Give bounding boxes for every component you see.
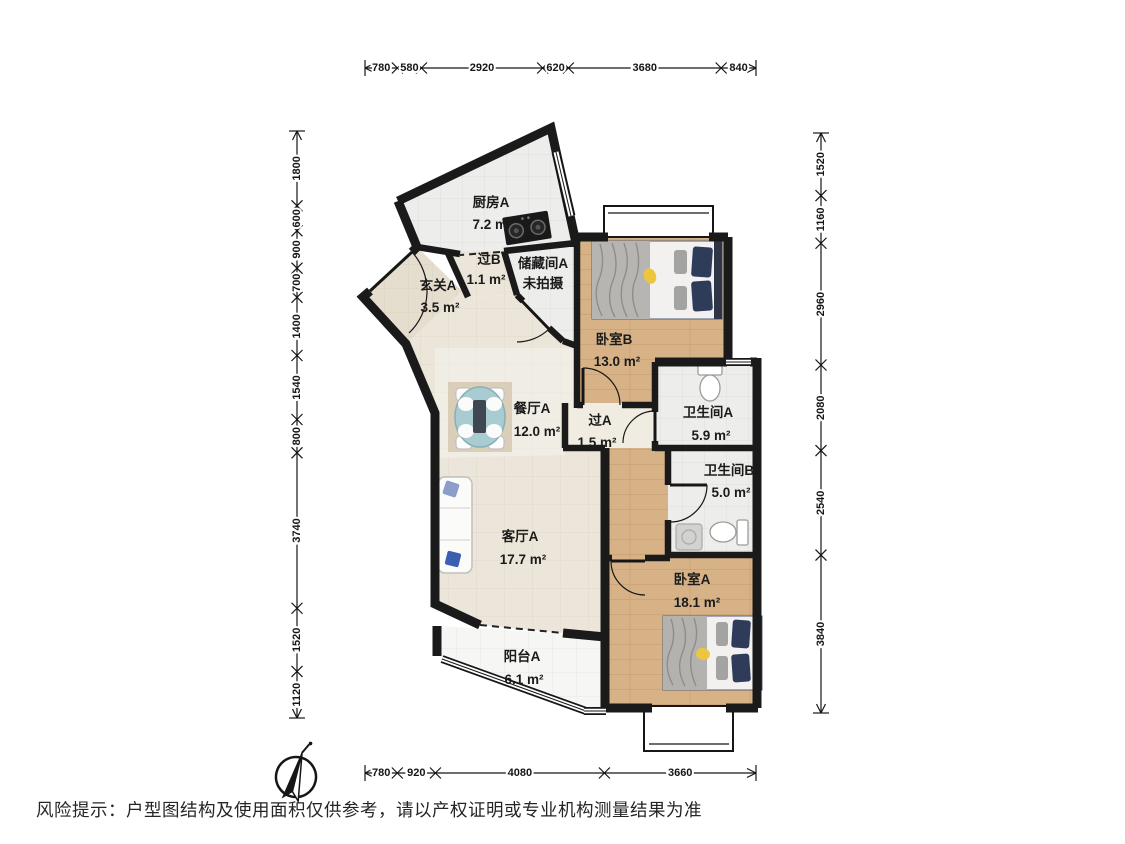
dimension-label: 1520 (815, 152, 827, 176)
svg-text:17.7 m²: 17.7 m² (500, 552, 547, 567)
dimension-label: 3740 (291, 518, 303, 542)
dimension-chain-top: 78058029206203680840 (365, 60, 756, 76)
dimension-label: 1540 (291, 375, 303, 399)
svg-text:6.1 m²: 6.1 m² (504, 672, 544, 687)
dimension-label: 1520 (291, 628, 303, 652)
dimension-label: 2960 (815, 292, 827, 316)
dimension-label: 700 (291, 274, 303, 292)
svg-text:卫生间A: 卫生间A (683, 404, 733, 420)
dimension-label: 920 (407, 767, 425, 779)
svg-text:卧室B: 卧室B (596, 331, 633, 347)
svg-text:13.0 m²: 13.0 m² (594, 354, 641, 369)
svg-text:12.0 m²: 12.0 m² (514, 424, 561, 439)
dimension-chain-bottom: 78092040803660 (365, 765, 756, 781)
dimension-label: 3680 (633, 62, 657, 74)
dimension-label: 2080 (815, 396, 827, 420)
svg-text:1.1 m²: 1.1 m² (466, 272, 506, 287)
toilet-icon-bath-a (698, 364, 722, 401)
svg-text:未拍摄: 未拍摄 (523, 275, 564, 291)
svg-text:5.0 m²: 5.0 m² (711, 485, 751, 500)
dimension-label: 1400 (291, 314, 303, 338)
dining-table-icon (448, 382, 512, 452)
dimension-label: 800 (291, 427, 303, 445)
dimension-label: 620 (546, 62, 564, 74)
svg-text:1.5 m²: 1.5 m² (577, 435, 617, 450)
svg-text:卫生间B: 卫生间B (704, 462, 754, 478)
svg-text:卧室A: 卧室A (674, 571, 711, 587)
compass-icon (271, 735, 325, 804)
dimension-label: 1800 (291, 156, 303, 180)
shower-tray-icon (676, 524, 702, 550)
dimension-label: 4080 (508, 767, 532, 779)
dimension-label: 580 (400, 62, 418, 74)
svg-text:7.2 m²: 7.2 m² (472, 217, 512, 232)
dimension-label: 1160 (815, 207, 827, 231)
dimension-label: 780 (372, 767, 390, 779)
svg-text:储藏间A: 储藏间A (517, 255, 568, 271)
dimension-label: 3660 (668, 767, 692, 779)
dimension-label: 2920 (470, 62, 494, 74)
dimension-label: 780 (372, 62, 390, 74)
floor-plan-page: 厨房A 7.2 m² 过B 1.1 m² 储藏间A 未拍摄 玄关A 3.5 m²… (0, 0, 1125, 844)
svg-text:玄关A: 玄关A (420, 277, 457, 293)
sofa-icon (438, 477, 472, 573)
svg-text:客厅A: 客厅A (501, 528, 539, 544)
bay-window-bedroom-b (604, 206, 713, 237)
bed-icon-bedroom-b (592, 241, 722, 319)
dimension-chain-left: 180060090070014001540800374015201120 (289, 131, 305, 718)
svg-text:3.5 m²: 3.5 m² (420, 300, 460, 315)
svg-text:18.1 m²: 18.1 m² (674, 595, 721, 610)
svg-text:阳台A: 阳台A (504, 648, 541, 664)
dimension-label: 2540 (815, 491, 827, 515)
svg-text:过A: 过A (588, 412, 612, 428)
svg-text:5.9 m²: 5.9 m² (691, 428, 731, 443)
dimension-label: 1120 (291, 683, 303, 707)
room-bedroom-a-corridor-floor (603, 448, 668, 560)
risk-disclaimer: 风险提示：户型图结构及使用面积仅供参考，请以产权证明或专业机构测量结果为准 (36, 797, 702, 822)
svg-text:餐厅A: 餐厅A (513, 400, 551, 416)
dimension-label: 3840 (815, 622, 827, 646)
svg-text:过B: 过B (477, 251, 500, 267)
dimension-label: 900 (291, 240, 303, 258)
bed-icon-bedroom-a (663, 616, 762, 690)
dimension-chain-right: 152011602960208025403840 (813, 133, 829, 713)
svg-text:厨房A: 厨房A (473, 194, 510, 210)
dimension-label: 600 (291, 209, 303, 227)
dimension-label: 840 (729, 62, 747, 74)
floor-plan-svg: 厨房A 7.2 m² 过B 1.1 m² 储藏间A 未拍摄 玄关A 3.5 m²… (0, 0, 1125, 844)
bay-window-bedroom-a (644, 706, 733, 751)
